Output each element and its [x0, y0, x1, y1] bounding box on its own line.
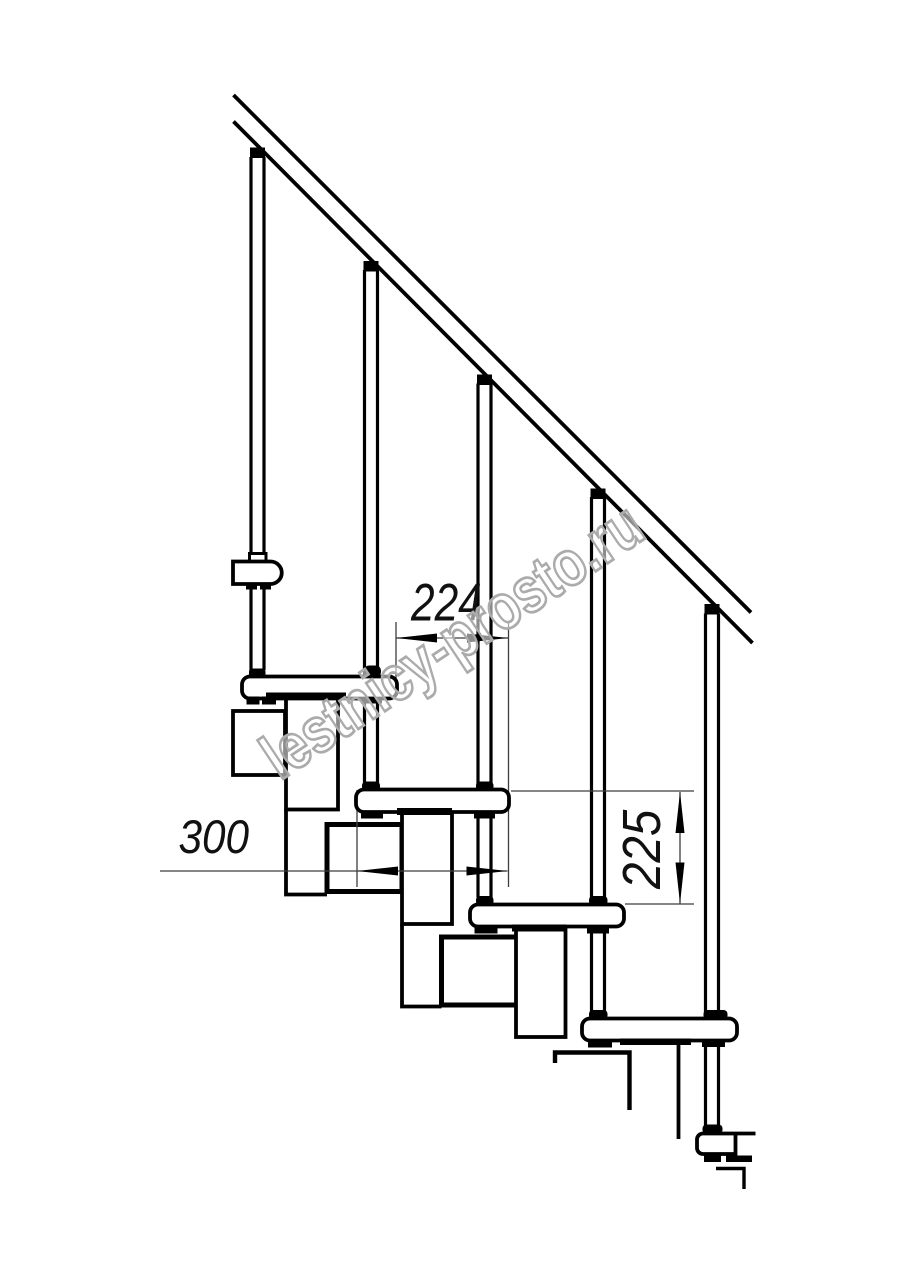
- svg-text:225: 225: [611, 809, 672, 890]
- svg-text:300: 300: [179, 812, 250, 864]
